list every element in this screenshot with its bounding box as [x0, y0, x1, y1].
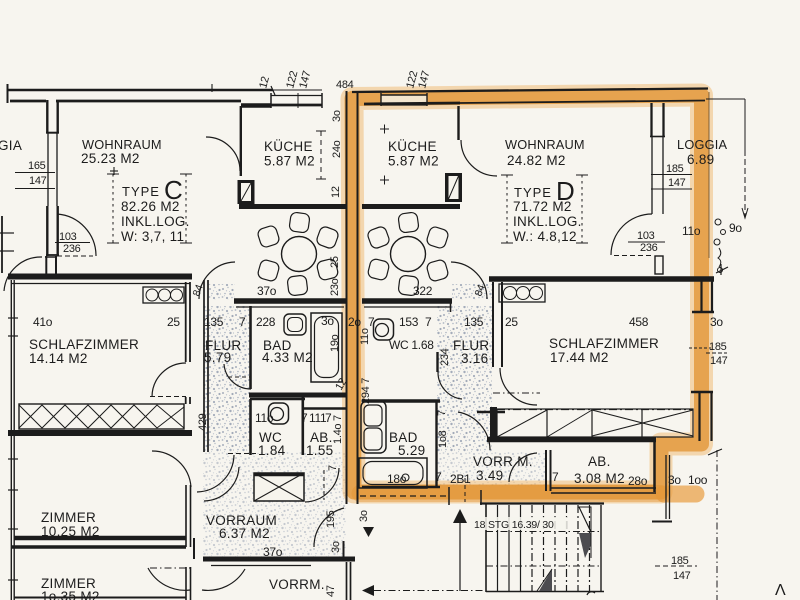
svg-text:INKL.LOG.: INKL.LOG. [121, 214, 190, 229]
svg-text:147: 147 [673, 570, 691, 582]
svg-text:135: 135 [464, 315, 484, 329]
svg-text:24o: 24o [331, 140, 343, 158]
svg-text:294 7: 294 7 [360, 378, 372, 404]
svg-text:TYPE: TYPE [122, 184, 160, 199]
svg-text:VORR M.: VORR M. [473, 454, 533, 469]
svg-text:165: 165 [28, 160, 46, 172]
svg-text:6.37 M2: 6.37 M2 [219, 526, 270, 541]
svg-text:228: 228 [256, 315, 276, 329]
svg-text:9o: 9o [729, 221, 742, 235]
svg-text:41o: 41o [33, 315, 53, 329]
svg-text:W: 3,7, 11: W: 3,7, 11 [121, 229, 184, 244]
svg-text:12: 12 [330, 186, 342, 198]
svg-text:7: 7 [435, 470, 442, 484]
svg-text:234: 234 [439, 348, 451, 366]
svg-text:7: 7 [436, 410, 448, 416]
svg-text:1o.35 M2: 1o.35 M2 [41, 589, 100, 600]
svg-text:INKL.LOG.: INKL.LOG. [513, 214, 582, 229]
svg-text:25.23 M2: 25.23 M2 [81, 151, 140, 166]
svg-text:25: 25 [167, 315, 180, 329]
svg-text:7: 7 [325, 411, 332, 425]
svg-text:3o: 3o [358, 510, 370, 522]
svg-text:KÜCHE: KÜCHE [388, 139, 437, 154]
svg-text:3.49: 3.49 [476, 468, 503, 483]
svg-text:7: 7 [301, 411, 308, 425]
svg-text:1.84: 1.84 [258, 443, 286, 458]
svg-text:3o: 3o [330, 541, 342, 553]
svg-text:2o: 2o [348, 315, 361, 329]
svg-text:4.33 M2: 4.33 M2 [262, 350, 313, 365]
svg-text:3o: 3o [331, 110, 343, 122]
svg-text:103: 103 [59, 231, 77, 243]
svg-text:6.89: 6.89 [687, 152, 714, 167]
svg-text:103: 103 [637, 230, 655, 242]
svg-text:AB.: AB. [588, 454, 611, 469]
svg-text:LOGGIA: LOGGIA [677, 137, 728, 152]
svg-text:7: 7 [327, 465, 339, 471]
svg-text:3o: 3o [710, 315, 723, 329]
svg-text:7: 7 [239, 315, 246, 329]
svg-text:1oo: 1oo [688, 473, 708, 487]
svg-text:W.: 4.8,12: W.: 4.8,12 [513, 229, 577, 244]
svg-text:3.08 M2: 3.08 M2 [574, 471, 625, 486]
svg-text:GIA: GIA [0, 138, 22, 153]
svg-text:KÜCHE: KÜCHE [264, 139, 313, 154]
svg-text:82.26 M2: 82.26 M2 [121, 199, 180, 214]
svg-text:147: 147 [668, 177, 686, 189]
svg-text:429: 429 [197, 413, 209, 431]
svg-text:SCHLAFZIMMER: SCHLAFZIMMER [549, 336, 659, 351]
svg-text:484: 484 [336, 79, 354, 91]
svg-text:28o: 28o [628, 474, 648, 488]
svg-text:3o: 3o [321, 314, 334, 328]
svg-text:19o: 19o [329, 334, 341, 352]
svg-text:5.87 M2: 5.87 M2 [264, 154, 315, 169]
svg-text:236: 236 [63, 243, 81, 255]
svg-text:47: 47 [325, 585, 337, 597]
svg-text:11o: 11o [682, 224, 701, 238]
svg-text:185: 185 [666, 163, 684, 175]
svg-text:185: 185 [671, 555, 689, 567]
svg-text:7: 7 [552, 470, 559, 484]
svg-text:17.44 M2: 17.44 M2 [550, 350, 609, 365]
svg-text:147: 147 [29, 175, 47, 187]
svg-text:5.29: 5.29 [398, 443, 425, 458]
svg-text:Λ: Λ [775, 582, 786, 599]
svg-text:3.16: 3.16 [461, 351, 488, 366]
svg-text:236: 236 [640, 242, 658, 254]
svg-text:458: 458 [629, 315, 649, 329]
svg-text:322: 322 [413, 284, 433, 298]
svg-text:18 STG 16.39/ 30: 18 STG 16.39/ 30 [474, 519, 554, 531]
svg-text:WOHNRAUM: WOHNRAUM [82, 137, 162, 152]
svg-text:TYPE: TYPE [514, 185, 552, 200]
svg-text:71.72 M2: 71.72 M2 [513, 199, 572, 214]
svg-text:5.87 M2: 5.87 M2 [388, 154, 439, 169]
svg-text:7: 7 [368, 315, 375, 329]
svg-text:37o: 37o [257, 284, 277, 298]
svg-text:3o: 3o [668, 473, 681, 487]
svg-text:1.55: 1.55 [306, 443, 333, 458]
svg-text:25: 25 [329, 256, 341, 268]
svg-text:ZIMMER: ZIMMER [41, 510, 96, 525]
svg-text:195: 195 [325, 510, 337, 528]
svg-text:24.82 M2: 24.82 M2 [507, 153, 566, 168]
svg-text:11o: 11o [255, 411, 274, 425]
svg-text:14.14 M2: 14.14 M2 [29, 351, 88, 366]
svg-text:153: 153 [399, 315, 419, 329]
svg-text:11o: 11o [359, 328, 371, 345]
svg-text:VORRM.: VORRM. [269, 577, 325, 592]
svg-text:SCHLAFZIMMER: SCHLAFZIMMER [29, 337, 139, 352]
svg-text:37o: 37o [263, 545, 283, 559]
svg-text:185: 185 [709, 341, 727, 353]
svg-text:WOHNRAUM: WOHNRAUM [505, 137, 585, 152]
svg-text:5.79: 5.79 [204, 350, 231, 365]
svg-text:2B1: 2B1 [450, 472, 471, 486]
svg-text:1.4o 7: 1.4o 7 [332, 415, 344, 444]
svg-text:10.25 M2: 10.25 M2 [41, 524, 100, 539]
svg-text:23o: 23o [329, 278, 341, 296]
svg-text:135: 135 [204, 315, 224, 329]
svg-text:1o8: 1o8 [437, 430, 449, 448]
svg-text:147: 147 [710, 355, 728, 367]
svg-text:WC 1.68: WC 1.68 [389, 338, 434, 352]
svg-text:18o: 18o [387, 472, 407, 486]
svg-text:7: 7 [425, 315, 432, 329]
svg-text:25: 25 [505, 315, 518, 329]
